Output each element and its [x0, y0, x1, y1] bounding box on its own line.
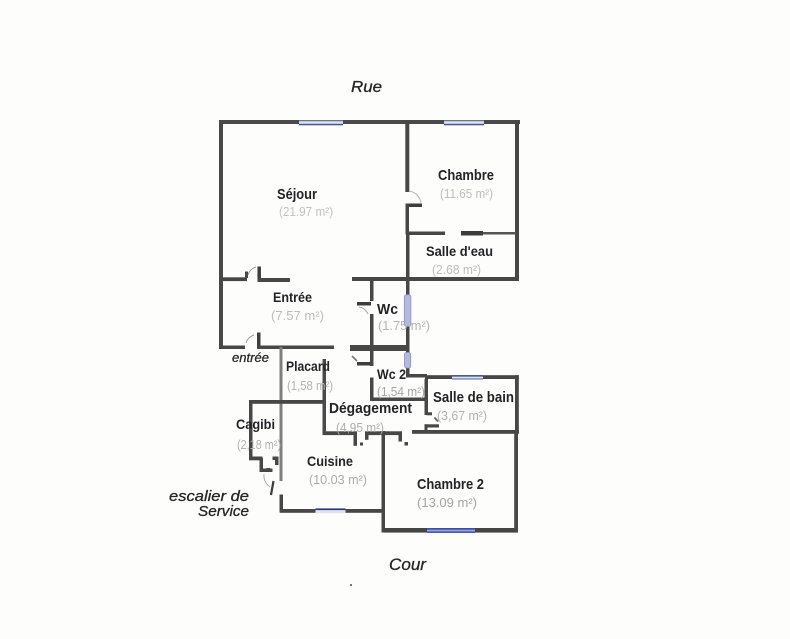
svg-text:(1,54 m²): (1,54 m²)	[377, 384, 425, 399]
svg-text:(4,95 m²): (4,95 m²)	[336, 420, 384, 435]
svg-text:(1.75 m²): (1.75 m²)	[378, 318, 430, 333]
svg-text:(13.09 m²): (13.09 m²)	[417, 495, 477, 510]
svg-text:(2,18 m²): (2,18 m²)	[237, 437, 281, 452]
svg-text:(3,67 m²): (3,67 m²)	[437, 408, 487, 423]
svg-text:Rue: Rue	[351, 79, 382, 96]
svg-text:Salle de bain: Salle de bain	[433, 389, 514, 406]
svg-text:Cagibi: Cagibi	[236, 416, 275, 432]
svg-text:(2.68 m²): (2.68 m²)	[432, 262, 481, 277]
svg-text:Chambre 2: Chambre 2	[417, 476, 484, 493]
svg-text:Wc: Wc	[377, 301, 398, 318]
svg-text:Salle d'eau: Salle d'eau	[426, 243, 493, 259]
svg-text:Wc 2: Wc 2	[377, 366, 406, 382]
svg-text:(11.65 m²): (11.65 m²)	[440, 186, 493, 201]
svg-text:Dégagement: Dégagement	[329, 400, 412, 417]
svg-text:Cuisine: Cuisine	[307, 453, 353, 469]
svg-text:Cour: Cour	[389, 555, 427, 574]
svg-text:(10.03 m²): (10.03 m²)	[309, 472, 367, 487]
svg-text:(7.57 m²): (7.57 m²)	[271, 308, 324, 323]
svg-text:Service: Service	[198, 503, 249, 520]
svg-text:(21.97 m²): (21.97 m²)	[279, 204, 333, 219]
svg-text:entrée: entrée	[232, 350, 269, 365]
svg-text:Placard: Placard	[286, 358, 330, 374]
svg-text:(1,58 m²): (1,58 m²)	[287, 378, 333, 393]
svg-text:Chambre: Chambre	[438, 167, 494, 184]
svg-text:Entrée: Entrée	[273, 289, 312, 305]
svg-text:Séjour: Séjour	[277, 186, 317, 203]
